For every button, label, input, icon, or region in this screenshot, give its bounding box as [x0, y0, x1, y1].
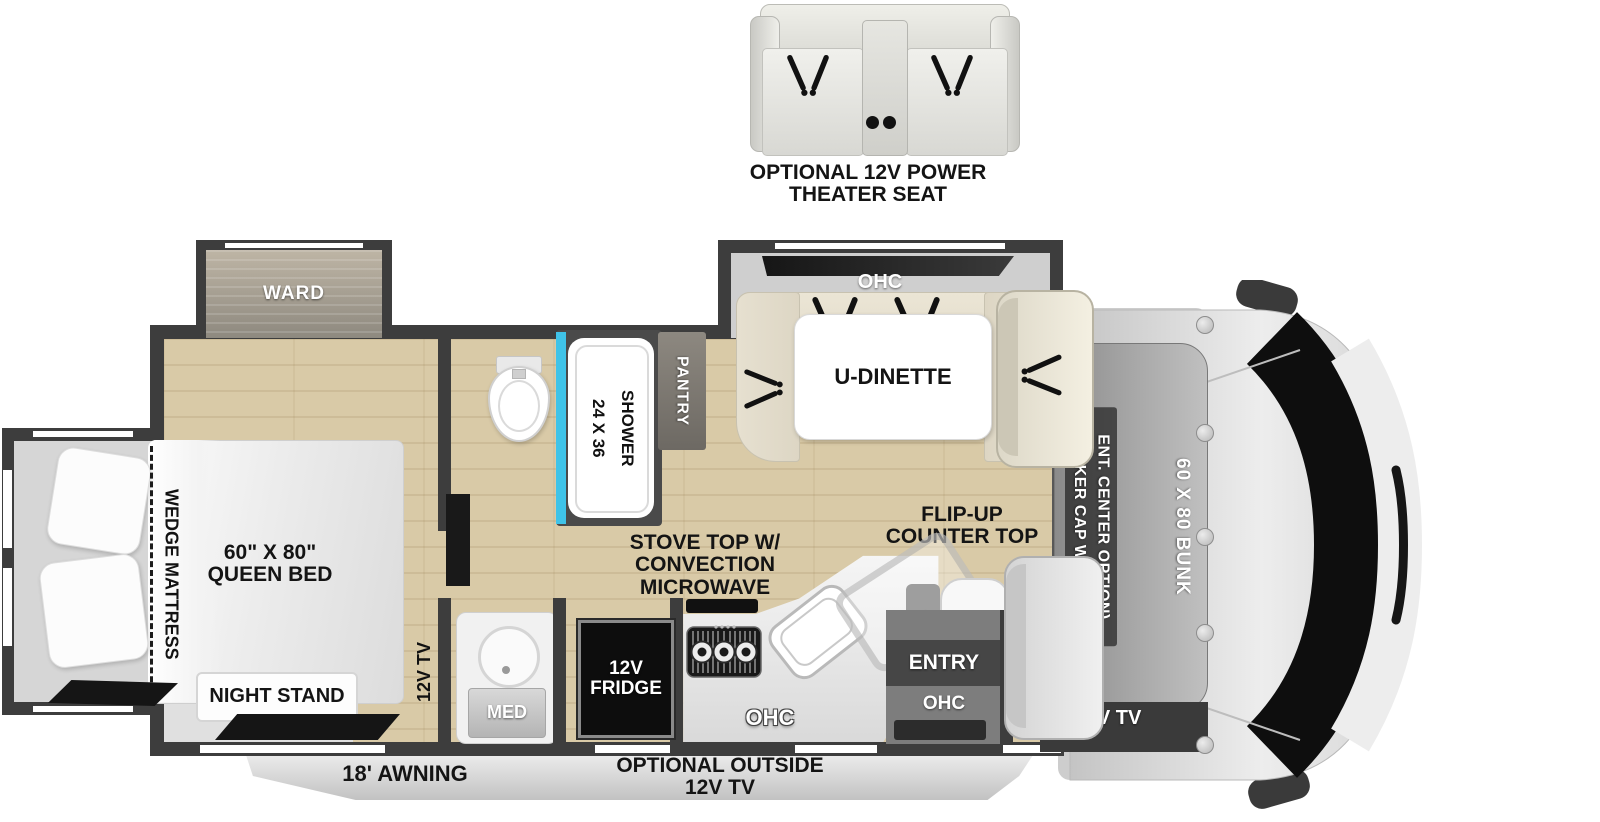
bedroom-tv-text: 12V TV	[410, 626, 438, 718]
seatbelt-icon	[780, 54, 836, 100]
cup-holder	[883, 116, 896, 129]
stove-label: STOVE TOP W/ CONVECTION MICROWAVE	[600, 532, 810, 599]
wedge-mattress-label: WEDGE MATTRESS	[161, 489, 182, 660]
clearance-light-icon	[1196, 528, 1214, 546]
dinette-slide-wall-left	[718, 240, 731, 338]
dinette-table: U-DINETTE	[794, 314, 992, 440]
stove-label-line1: STOVE TOP W/	[600, 532, 810, 554]
passenger-seat-back	[998, 298, 1018, 456]
med-label: MED	[487, 703, 527, 722]
entry-label: ENTRY	[909, 652, 979, 674]
night-stand-label: NIGHT STAND	[209, 686, 344, 707]
window	[3, 470, 12, 548]
window	[225, 243, 363, 248]
window	[3, 568, 12, 646]
wedge-mattress-divider	[150, 446, 153, 700]
pocket-door	[446, 494, 470, 586]
pillow	[45, 445, 153, 556]
stove-top	[686, 620, 762, 684]
vanity-faucet	[502, 666, 510, 674]
night-stand-rug	[215, 714, 400, 740]
bedroom-tv-label: 12V TV	[414, 642, 435, 702]
ward-slideout: WARD	[196, 240, 392, 338]
theater-seat-console	[862, 20, 908, 156]
queen-bed-label: 60" X 80" QUEEN BED	[185, 542, 355, 587]
theater-seat-label-line1: OPTIONAL 12V POWER	[740, 162, 996, 184]
flip-up-line2: COUNTER TOP	[862, 526, 1062, 548]
bath-wall-lower	[438, 598, 451, 744]
seatbelt-icon	[738, 364, 792, 414]
pillow	[38, 552, 150, 669]
clearance-light-icon	[1196, 736, 1214, 754]
entry-shelf	[894, 720, 986, 740]
outside-tv-line1: OPTIONAL OUTSIDE	[600, 755, 840, 777]
cup-holder	[866, 116, 879, 129]
entry-ohc-label: OHC	[886, 694, 1002, 714]
pantry-label: PANTRY	[673, 356, 690, 426]
bedroom-rug	[48, 680, 178, 706]
window	[200, 745, 385, 753]
ward-cabinet: WARD	[206, 250, 382, 338]
clearance-light-icon	[1196, 424, 1214, 442]
fridge-label-line1: 12V	[590, 659, 662, 679]
window	[33, 706, 133, 712]
bunk-size-label: 60 X 80 BUNK	[1172, 458, 1192, 596]
shower-size: 24 X 36	[583, 390, 612, 467]
window	[795, 745, 877, 753]
queen-bed-size: 60" X 80"	[185, 542, 355, 564]
fridge-label-line2: FRIDGE	[590, 679, 662, 699]
rv-floorplan: OPTIONAL 12V POWER THEATER SEAT 18' AWNI…	[0, 0, 1600, 822]
stove-label-line2: CONVECTION	[600, 554, 810, 576]
clearance-light-icon	[1196, 624, 1214, 642]
shower-name: SHOWER	[612, 390, 641, 467]
toilet-button	[512, 369, 526, 379]
entry-step: ENTRY	[886, 640, 1002, 686]
window	[775, 243, 1005, 249]
window	[595, 745, 670, 753]
fridge-label: 12V FRIDGE	[590, 659, 662, 700]
shower-label-wrap: 24 X 36 SHOWER	[570, 340, 654, 516]
flip-up-line1: FLIP-UP	[862, 504, 1062, 526]
outside-tv-label: OPTIONAL OUTSIDE 12V TV	[600, 755, 840, 800]
seatbelt-icon	[924, 54, 980, 100]
theater-seat-label: OPTIONAL 12V POWER THEATER SEAT	[740, 162, 996, 207]
wall-pier	[553, 598, 566, 744]
toilet-seat	[498, 380, 540, 432]
awning-label: 18' AWNING	[295, 762, 515, 786]
seatbelt-icon	[1017, 349, 1063, 401]
queen-bed-name: QUEEN BED	[185, 564, 355, 586]
stove-hood	[686, 599, 758, 613]
driver-seat	[1004, 556, 1104, 740]
dinette-ohc-label: OHC	[800, 272, 960, 293]
bunk-size-text: 60 X 80 BUNK	[1167, 344, 1197, 710]
theater-seat-illustration	[750, 2, 1020, 158]
stove-label-line3: MICROWAVE	[600, 577, 810, 599]
med-cabinet: MED	[468, 688, 546, 738]
shower-glass	[556, 332, 566, 524]
wedge-mattress-text: WEDGE MATTRESS	[156, 448, 186, 700]
outside-tv-line2: 12V TV	[600, 777, 840, 799]
dinette-label: U-DINETTE	[834, 365, 951, 389]
pantry-cabinet: PANTRY	[658, 332, 706, 450]
driver-seat-back	[1006, 564, 1026, 728]
shower-stall: 24 X 36 SHOWER	[556, 330, 662, 526]
vanity-sink	[478, 626, 540, 688]
window	[33, 431, 133, 437]
flip-up-counter-label: FLIP-UP COUNTER TOP	[862, 504, 1062, 549]
theater-seat-label-line2: THEATER SEAT	[740, 184, 996, 206]
fridge: 12V FRIDGE	[578, 620, 674, 738]
ward-label: WARD	[263, 284, 325, 304]
clearance-light-icon	[1196, 316, 1214, 334]
kitchen-ohc-label: OHC	[700, 706, 840, 730]
shower-label: 24 X 36 SHOWER	[583, 390, 641, 467]
